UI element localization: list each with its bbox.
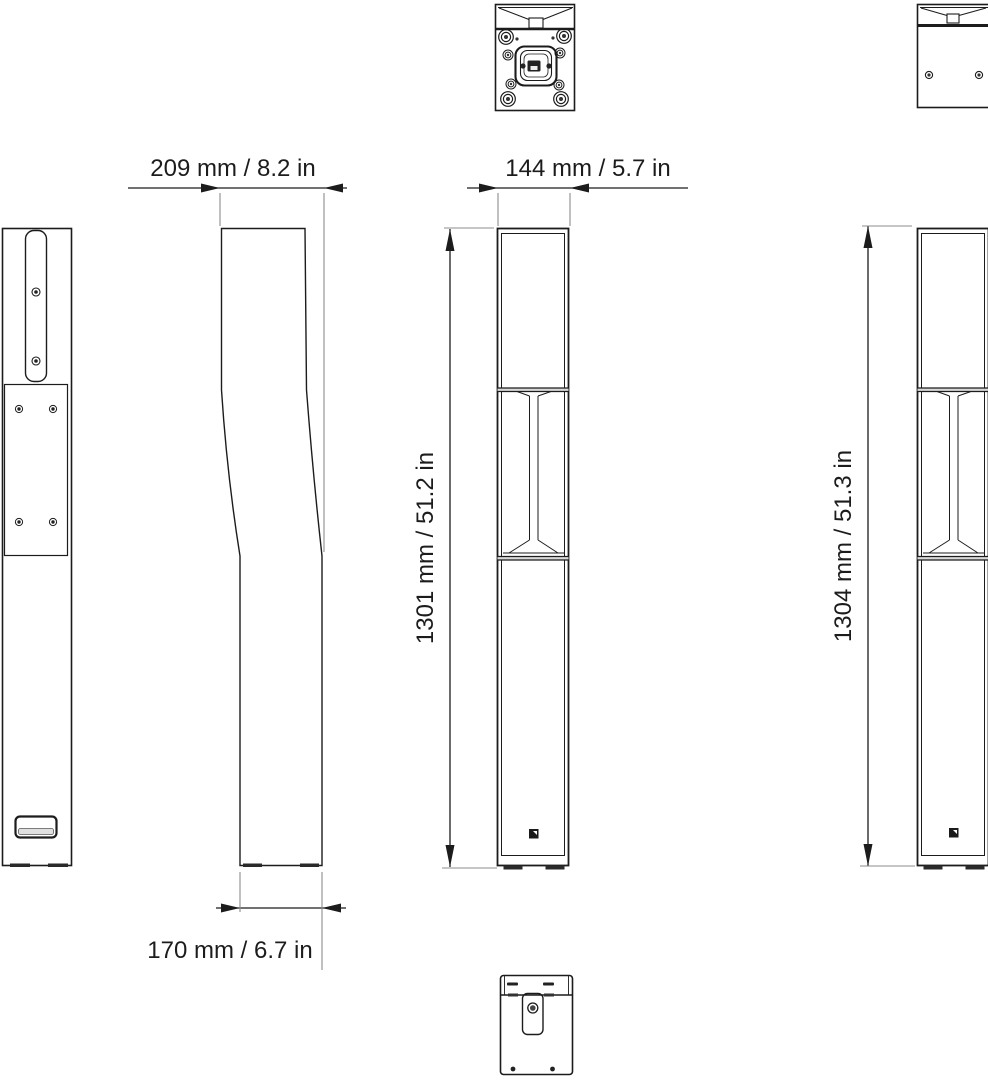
dimension-depth-bottom: 170 mm / 6.7 in xyxy=(147,872,346,970)
dimension-label-depth-bottom: 170 mm / 6.7 in xyxy=(147,937,312,964)
technical-drawing-canvas: 209 mm / 8.2 in 144 mm / 5.7 in 170 mm /… xyxy=(0,0,988,1080)
cabinet-divider xyxy=(498,388,569,392)
grille-frame xyxy=(922,234,985,856)
arrow-left-icon xyxy=(322,904,341,913)
front-view-right xyxy=(918,229,988,870)
pole-mount-pocket xyxy=(523,994,544,1035)
pin-dot-icon xyxy=(551,36,554,39)
top-view-partial xyxy=(918,5,988,108)
foot-icon xyxy=(544,994,554,997)
arrow-down-icon xyxy=(446,845,455,867)
foot-icon xyxy=(10,864,30,868)
brand-logo xyxy=(949,828,959,838)
screw-icon xyxy=(550,1067,555,1072)
arrow-up-icon xyxy=(446,229,455,251)
horn-flare-icon xyxy=(921,8,986,23)
pole-mount-socket xyxy=(516,47,557,86)
rear-panel xyxy=(5,385,68,556)
horn-flare-icon xyxy=(499,8,572,28)
front-view xyxy=(498,229,569,870)
pin-dot-icon xyxy=(515,37,518,40)
arrow-right-icon xyxy=(221,904,240,913)
screw-icon xyxy=(49,405,56,412)
waveguide-column xyxy=(503,392,564,554)
side-profile-view xyxy=(222,229,323,868)
arrow-up-icon xyxy=(864,226,873,248)
foot-icon xyxy=(48,864,68,868)
dimension-label-depth-top: 209 mm / 8.2 in xyxy=(150,155,315,182)
screw-icon xyxy=(499,30,514,45)
back-view xyxy=(3,229,72,868)
foot-icon xyxy=(924,866,943,870)
screw-icon xyxy=(975,71,982,78)
screw-icon xyxy=(506,79,516,89)
dimension-width-front: 144 mm / 5.7 in xyxy=(467,155,688,226)
arrow-right-icon xyxy=(479,184,498,193)
dimension-label-width-front: 144 mm / 5.7 in xyxy=(505,155,670,182)
cabinet-divider xyxy=(498,557,569,561)
top-view xyxy=(496,5,575,111)
dimension-height-front: 1301 mm / 51.2 in xyxy=(412,228,497,868)
dimension-depth-top: 209 mm / 8.2 in xyxy=(128,155,347,552)
speaker-dimension-drawing: 209 mm / 8.2 in 144 mm / 5.7 in 170 mm /… xyxy=(0,0,988,1080)
foot-icon xyxy=(504,866,523,870)
cabinet-divider xyxy=(918,557,988,561)
screw-icon xyxy=(15,405,22,412)
screw-icon xyxy=(554,92,569,107)
bracket-slot xyxy=(26,231,47,382)
waveguide-column xyxy=(923,392,984,554)
screw-icon xyxy=(49,518,56,525)
dimension-label-height-front: 1301 mm / 51.2 in xyxy=(412,452,439,644)
screw-icon xyxy=(501,92,516,107)
vent-slot-icon xyxy=(543,983,554,986)
arrow-left-icon xyxy=(324,184,343,193)
foot-icon xyxy=(546,866,565,870)
handle-recess xyxy=(16,817,57,838)
vent-slot-icon xyxy=(507,983,518,986)
grille-frame xyxy=(502,234,565,856)
screw-icon xyxy=(511,1067,516,1072)
arrow-left-icon xyxy=(570,184,589,193)
cabinet-divider xyxy=(918,388,988,392)
bottom-view xyxy=(501,976,573,1075)
brand-logo xyxy=(529,829,539,839)
foot-icon xyxy=(300,864,319,868)
screw-icon xyxy=(15,518,22,525)
arrow-right-icon xyxy=(201,184,220,193)
dimension-label-height-rear: 1304 mm / 51.3 in xyxy=(830,450,857,642)
screw-icon xyxy=(32,288,40,296)
foot-icon xyxy=(508,994,518,997)
dimension-height-rear: 1304 mm / 51.3 in xyxy=(830,226,915,866)
screw-icon xyxy=(32,357,40,365)
screw-icon xyxy=(925,71,932,78)
foot-icon xyxy=(243,864,262,868)
arrow-down-icon xyxy=(864,844,873,866)
screw-icon xyxy=(503,50,513,60)
foot-icon xyxy=(966,866,985,870)
screw-icon xyxy=(557,29,572,44)
